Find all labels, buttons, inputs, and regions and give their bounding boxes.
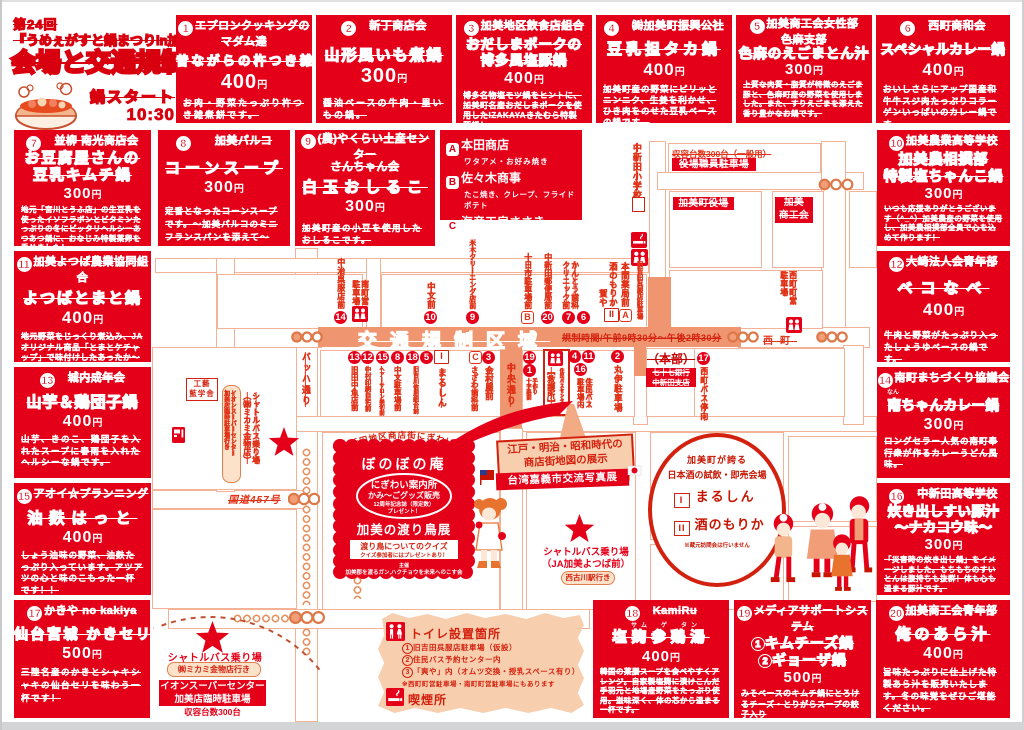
svg-text:12周年記念誌（限定数）: 12周年記念誌（限定数） [373,500,434,508]
svg-text:加美の渡り鳥展: 加美の渡り鳥展 [356,522,452,537]
svg-text:ぼのぼの庵: ぼのぼの庵 [362,456,447,472]
svg-text:かみ～ごグッズ販売: かみ～ごグッズ販売 [368,490,440,500]
svg-text:主催: 主催 [399,562,409,569]
svg-text:にぎわい案内所: にぎわい案内所 [371,479,438,491]
svg-text:プレゼント！: プレゼント！ [387,507,420,515]
svg-text:加美郡を渡るガン,ハクチョウを未来へのこす会: 加美郡を渡るガン,ハクチョウを未来へのこす会 [345,568,463,576]
svg-text:渡り鳥についてのクイズ: 渡り鳥についてのクイズ [360,541,448,551]
svg-text:クイズ参加者にはプレゼントあり！: クイズ参加者にはプレゼントあり！ [360,551,448,559]
